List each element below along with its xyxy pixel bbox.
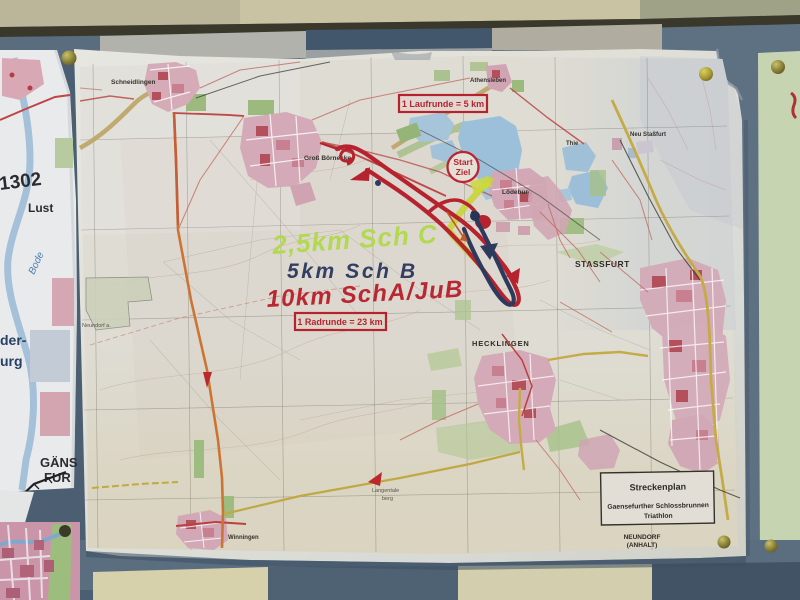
svg-text:Schneidlingen: Schneidlingen xyxy=(111,79,155,86)
svg-text:1 Laufrunde = 5 km: 1 Laufrunde = 5 km xyxy=(402,99,484,109)
svg-text:NEUNDORF: NEUNDORF xyxy=(624,534,661,541)
svg-text:FUR: FUR xyxy=(44,470,71,485)
svg-text:HECKLINGEN: HECKLINGEN xyxy=(472,339,530,348)
svg-text:berg: berg xyxy=(382,496,393,502)
svg-text:urg: urg xyxy=(0,353,23,369)
svg-text:Langentale: Langentale xyxy=(372,488,399,494)
svg-text:STASSFURT: STASSFURT xyxy=(575,259,630,269)
svg-text:Winningen: Winningen xyxy=(228,535,259,541)
svg-text:Lust: Lust xyxy=(28,201,53,215)
svg-text:Lödeburg: Lödeburg xyxy=(502,189,532,196)
svg-text:GÄNS: GÄNS xyxy=(40,455,78,470)
svg-text:Athensleben: Athensleben xyxy=(470,78,506,84)
svg-text:(ANHALT): (ANHALT) xyxy=(627,542,658,549)
svg-text:Ziel: Ziel xyxy=(456,167,471,177)
svg-text:Neundorf a.: Neundorf a. xyxy=(82,323,111,329)
svg-text:Triathlon: Triathlon xyxy=(644,513,673,520)
svg-text:Start: Start xyxy=(453,157,473,167)
svg-text:1 Radrunde = 23 km: 1 Radrunde = 23 km xyxy=(297,317,382,327)
svg-text:Thie: Thie xyxy=(566,141,579,147)
svg-text:Streckenplan: Streckenplan xyxy=(629,482,686,493)
svg-text:Neu Staßfurt: Neu Staßfurt xyxy=(630,132,666,138)
svg-text:der-: der- xyxy=(0,332,27,348)
